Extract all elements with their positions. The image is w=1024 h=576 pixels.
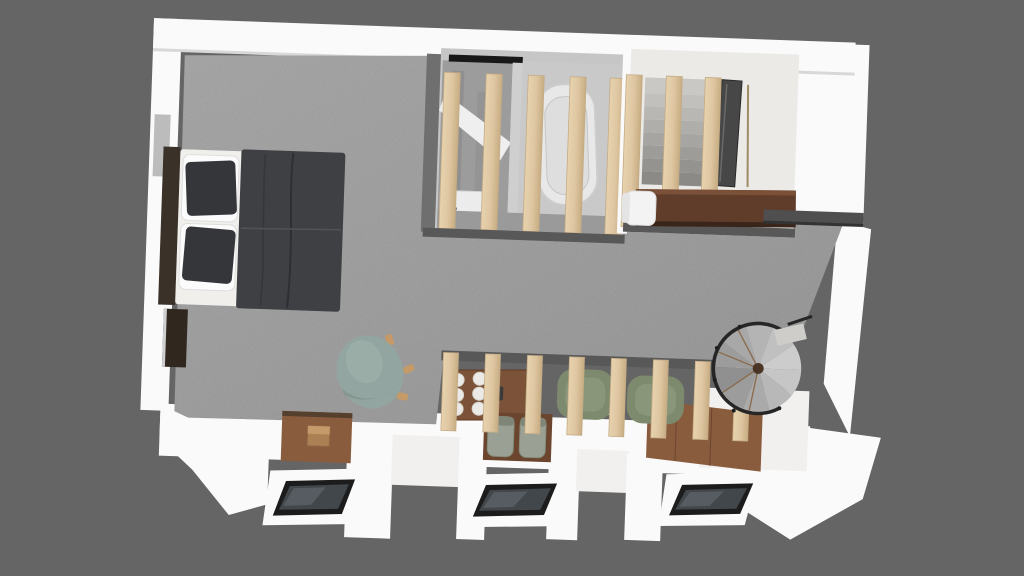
bathroom-block [421, 48, 631, 244]
floor-pocket-2 [576, 449, 629, 493]
bed-pillow-dark [185, 160, 237, 216]
roof-window-3 [669, 480, 753, 518]
sage-armchair [556, 368, 614, 420]
wood-slat [693, 361, 711, 439]
window-pier-2 [456, 419, 488, 540]
floor-pocket-1 [391, 435, 465, 487]
stool-top [308, 426, 330, 435]
wood-floor-alcove-1 [281, 411, 353, 463]
wood-slat [609, 358, 627, 436]
floor-plan-canvas [0, 0, 1024, 576]
window-pier-4 [624, 454, 663, 541]
wood-slat [483, 354, 501, 432]
floor-plan-render [0, 0, 1024, 576]
wood-slat [441, 352, 459, 430]
wood-slat [525, 355, 543, 433]
wooden-stool [307, 426, 330, 447]
wood-slat [651, 360, 669, 438]
wood-slat [567, 357, 585, 435]
roof-window-2 [473, 481, 557, 520]
double-bed [158, 147, 345, 312]
apartment-plan [136, 18, 894, 556]
desk-chair [621, 191, 656, 226]
bed-pillow-dark [182, 226, 237, 284]
desk-chair-back [621, 193, 630, 223]
